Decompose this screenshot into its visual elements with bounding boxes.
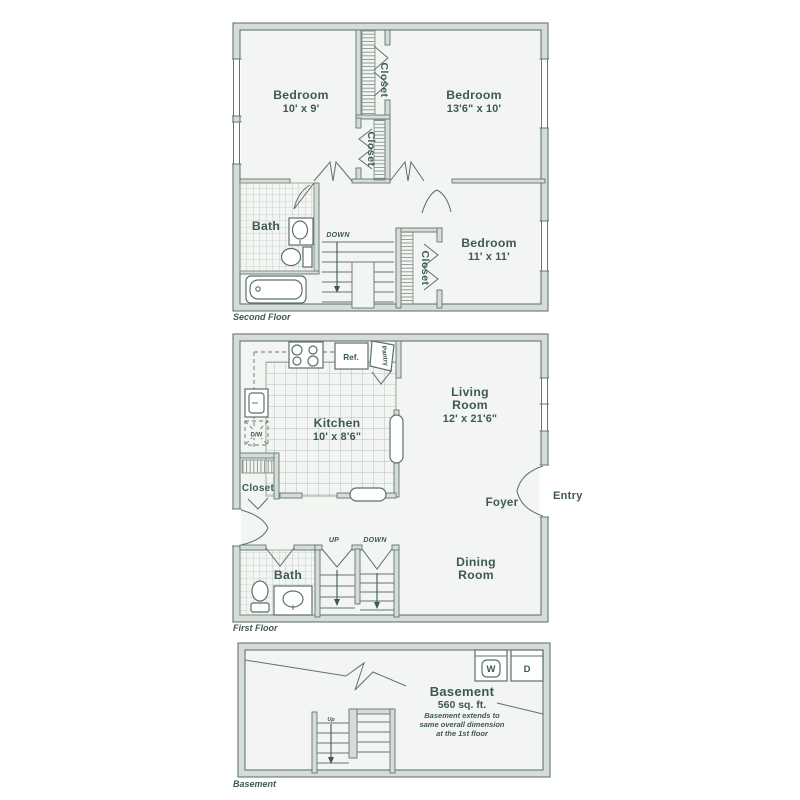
floor-plan-page: Bedroom 10' x 9' Bedroom 13'6" x 10' Bed… bbox=[0, 0, 800, 800]
basement-plan: W D Up Basement 560 sq. ft. bbox=[233, 643, 550, 789]
dining-room-label-2: Room bbox=[458, 568, 494, 582]
basement-title: Basement bbox=[430, 684, 495, 699]
dryer-label: D bbox=[524, 664, 531, 675]
radiator-vertical bbox=[390, 415, 403, 463]
bedroom3-dims: 11' x 11' bbox=[468, 251, 510, 263]
toilet-fixture bbox=[282, 247, 313, 267]
bathtub-fixture bbox=[246, 276, 306, 303]
kitchen-sink-fixture bbox=[245, 389, 268, 417]
up-label: UP bbox=[329, 537, 339, 544]
entry-label: Entry bbox=[553, 490, 583, 502]
living-room-label-1: Living bbox=[451, 385, 489, 399]
window-bedroom1-left-a bbox=[232, 59, 242, 116]
window-bedroom1-left-b bbox=[232, 122, 242, 164]
basement-caption: Basement bbox=[233, 779, 277, 789]
second-floor-plan: Bedroom 10' x 9' Bedroom 13'6" x 10' Bed… bbox=[232, 23, 549, 322]
window-bedroom2-right bbox=[540, 59, 550, 128]
basement-note-3: at the 1st floor bbox=[436, 729, 489, 738]
closet-upper-label: Closet bbox=[378, 62, 390, 97]
closet-label-first: Closet bbox=[242, 483, 275, 494]
basement-note-1: Basement extends to bbox=[424, 711, 500, 720]
second-floor-bath bbox=[240, 183, 314, 303]
bedroom2-label: Bedroom bbox=[446, 88, 502, 102]
foyer-label: Foyer bbox=[486, 497, 519, 509]
basement-up-label: Up bbox=[327, 717, 335, 723]
toilet-fixture-first bbox=[251, 581, 269, 612]
second-floor-caption: Second Floor bbox=[233, 312, 291, 322]
down-label-first: DOWN bbox=[363, 537, 387, 544]
closet-lower-label: Closet bbox=[365, 131, 377, 166]
floor-plan-canvas: Bedroom 10' x 9' Bedroom 13'6" x 10' Bed… bbox=[0, 0, 800, 800]
bath-label-second: Bath bbox=[252, 219, 280, 233]
window-living-right bbox=[540, 378, 550, 431]
washer-label: W bbox=[487, 664, 496, 675]
living-room-label-2: Room bbox=[452, 398, 488, 412]
dining-room-label-1: Dining bbox=[456, 555, 496, 569]
stairwell-void bbox=[352, 262, 374, 308]
basement-note-2: same overall dimension bbox=[419, 720, 504, 729]
basement-area-label: 560 sq. ft. bbox=[438, 699, 487, 711]
closet-shelf bbox=[242, 460, 274, 473]
bedroom2-dims: 13'6" x 10' bbox=[447, 103, 502, 115]
fridge-label: Ref. bbox=[343, 353, 358, 362]
dishwasher-label: D/W bbox=[251, 433, 263, 439]
first-floor-plan: Ref. Pantry D/W bbox=[232, 334, 583, 633]
first-floor-caption: First Floor bbox=[233, 623, 278, 633]
vanity-sink-fixture bbox=[274, 586, 312, 615]
closet-bedroom3-label: Closet bbox=[419, 250, 431, 285]
bedroom1-dims: 10' x 9' bbox=[283, 103, 320, 115]
sink-fixture bbox=[289, 218, 313, 245]
kitchen-label: Kitchen bbox=[314, 416, 361, 430]
window-bedroom3-right bbox=[540, 221, 550, 271]
bath-label-first: Bath bbox=[274, 568, 302, 582]
kitchen-dims: 10' x 8'6" bbox=[313, 431, 361, 443]
down-label-second: DOWN bbox=[326, 232, 350, 239]
bedroom1-label: Bedroom bbox=[273, 88, 329, 102]
radiator-horizontal bbox=[350, 488, 386, 501]
stove-fixture bbox=[289, 342, 323, 368]
living-room-dims: 12' x 21'6" bbox=[443, 413, 497, 425]
bedroom3-label: Bedroom bbox=[461, 236, 517, 250]
